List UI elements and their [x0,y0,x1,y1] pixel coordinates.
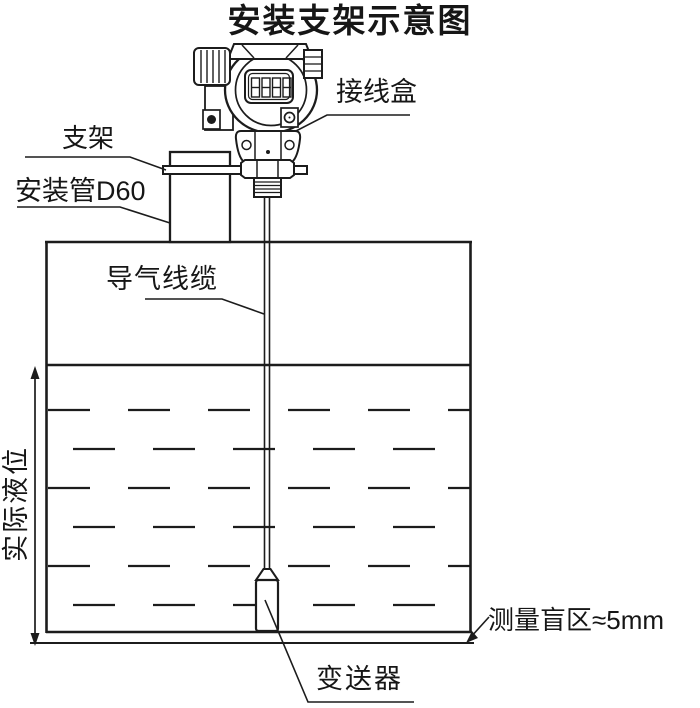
label-mounting-pipe: 安装管D60 [15,177,146,207]
air-cable-leader [145,299,264,314]
installation-diagram: 安装支架示意图 接线盒 支架 安装管D60 导气线缆 实际液位 测量盲区≈5mm… [0,0,700,708]
mounting-pipe-leader [17,207,170,223]
display-icon [245,70,293,103]
bracket-leader [25,157,166,170]
label-transmitter: 变送器 [316,665,403,695]
junction-box-leader [296,115,410,131]
down-arrowhead-icon [31,633,40,646]
label-air-cable: 导气线缆 [106,265,218,295]
label-blind-zone: 测量盲区≈5mm [488,606,664,635]
label-actual-level: 实际液位 [2,434,32,574]
level-dimension-arrow [31,366,40,646]
threaded-stub [254,178,281,197]
label-bracket: 支架 [62,124,114,153]
cable-gland-icon [194,48,230,85]
up-arrowhead-icon [31,366,40,379]
hex-nut [241,160,294,178]
neck-spool [236,131,300,162]
label-junction-box: 接线盒 [336,78,417,108]
side-port [304,50,322,78]
left-bolt-icon [207,115,216,124]
top-cap [228,44,312,59]
tank [30,242,474,643]
air-cable [265,197,270,570]
page-title: 安装支架示意图 [0,3,700,39]
